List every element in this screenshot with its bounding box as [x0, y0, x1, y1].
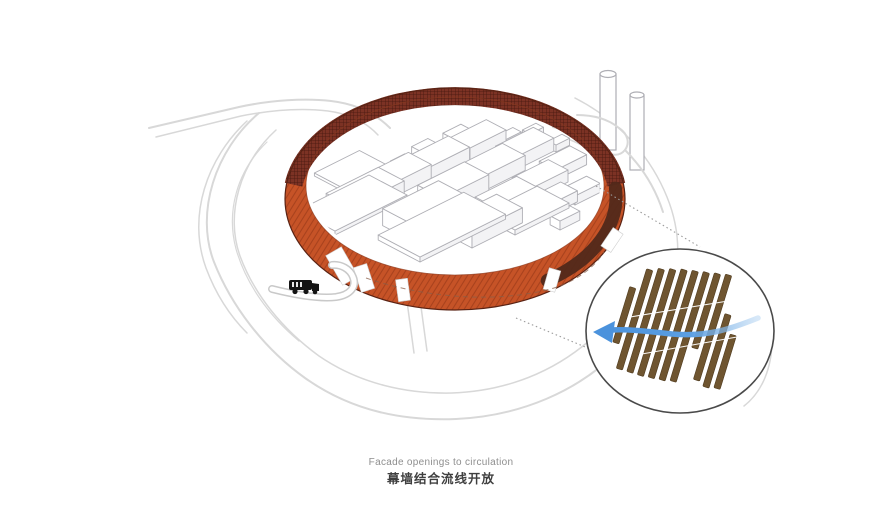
truck-wheel-2 [303, 289, 308, 294]
truck-wheel-1 [292, 289, 297, 294]
caption-english: Facade openings to circulation [0, 456, 882, 470]
detail-callout [586, 248, 774, 413]
chimney-left [600, 74, 616, 150]
architectural-diagram: Facade openings to circulation 幕墙结合流线开放 [0, 0, 882, 526]
leader-line-bottom [516, 318, 590, 349]
truck-window-1 [292, 282, 294, 287]
truck-window-3 [300, 282, 302, 287]
truck-window-2 [296, 282, 298, 287]
interior-building-massing [297, 120, 600, 262]
truck-icon [289, 280, 319, 294]
caption-chinese: 幕墙结合流线开放 [0, 471, 882, 488]
chimney-left-top [600, 71, 616, 78]
caption: Facade openings to circulation 幕墙结合流线开放 [0, 456, 882, 487]
chimney-right-top [630, 92, 644, 98]
truck-wheel-3 [313, 290, 318, 295]
